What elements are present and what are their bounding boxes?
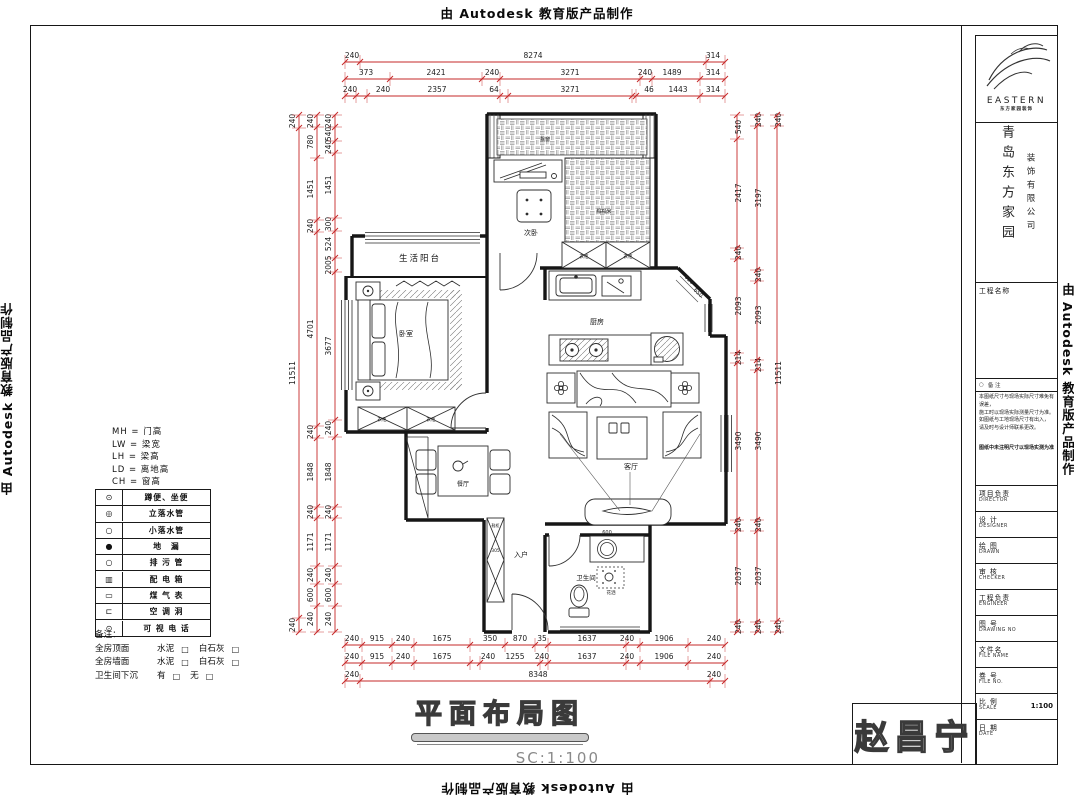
toilet-symbol-icon: ⊙	[96, 490, 123, 505]
checkbox-icon: □	[206, 670, 214, 684]
coffee-table	[597, 417, 647, 459]
project-name-label: 工程名称	[979, 285, 1054, 295]
shoe-cabinet-label: 鞋柜	[492, 522, 500, 528]
shower-label: 花洒	[607, 589, 616, 596]
checkbox-icon: □	[173, 670, 181, 684]
title-underline-thin	[417, 744, 583, 745]
svg-text:4701: 4701	[306, 319, 315, 338]
svg-text:2037: 2037	[734, 566, 743, 585]
floor-drain-icon: ●	[96, 539, 123, 554]
svg-text:46: 46	[644, 85, 654, 94]
svg-text:35: 35	[537, 634, 547, 643]
wardrobe-label: 衣柜	[378, 416, 387, 423]
legend-row: ▥配 电 箱	[96, 570, 210, 586]
armchair	[549, 412, 587, 458]
gas-stove	[560, 339, 608, 361]
note-row: 卫生间下沉 有□ 无□	[95, 670, 239, 684]
revision-row: ○ 备 注	[976, 379, 1057, 392]
svg-text:240: 240	[396, 652, 411, 661]
legend-row: ⊙蹲便、坐便	[96, 490, 210, 505]
kitchen-label: 厨房	[590, 317, 604, 326]
brand-subtitle: 东方家园装饰	[979, 106, 1054, 112]
abbr-line: LH = 梁高	[112, 451, 169, 464]
site-note: 图纸中未注明尺寸以现场实测为准	[979, 445, 1054, 453]
finish-notes: 备注： 全房顶面 水泥□ 白石灰□ 全房墙面 水泥□ 白石灰□ 卫生间下沉 有□…	[95, 629, 239, 683]
svg-text:240: 240	[376, 85, 391, 94]
svg-text:1489: 1489	[662, 68, 681, 77]
dresser	[494, 160, 562, 182]
svg-text:1443: 1443	[668, 85, 687, 94]
legend-row: ⊏空 调 洞	[96, 603, 210, 619]
legend-row: ●地 漏	[96, 538, 210, 554]
wardrobe-cabinets	[358, 407, 455, 430]
wardrobe-label: 衣柜	[624, 253, 633, 260]
svg-text:240: 240	[306, 612, 315, 627]
dim-chain-right-outer: 240 11511 240	[770, 112, 784, 635]
svg-text:3271: 3271	[560, 85, 579, 94]
living-room: 客厅	[547, 371, 701, 525]
bathroom-door-arc	[549, 535, 580, 566]
svg-text:11511: 11511	[774, 361, 783, 385]
tb-row-drawn: 绘 图DRAWN	[976, 538, 1057, 564]
entry-area: 鞋柜 305 入户	[487, 518, 548, 630]
drawing-title-text: 平面布局图	[400, 692, 600, 731]
second-bedroom: 飘窗 榻榻米 衣柜 衣柜 次卧	[494, 119, 650, 290]
tb-row-file-no: 卷 号FILE NO.	[976, 668, 1057, 694]
svg-text:64: 64	[489, 85, 499, 94]
balcony-label: 生活阳台	[399, 253, 441, 264]
dim-chain-bottom-1: 240 915 240 1675 350 870 35 1637 240 190…	[342, 634, 728, 652]
svg-text:240: 240	[288, 114, 297, 129]
dim-chain-top-3: 240 240 2357 64 3271 46 1443 314	[342, 85, 728, 103]
svg-text:240: 240	[707, 652, 722, 661]
project-name-section: 工程名称	[976, 283, 1057, 379]
svg-text:1848: 1848	[306, 462, 315, 481]
svg-text:240: 240	[306, 425, 315, 440]
end-table	[547, 373, 575, 403]
tatami-label: 榻榻米	[596, 208, 611, 215]
small-downpipe-icon: ○	[96, 523, 123, 538]
dim-chain-top-1: 240 8274 314	[342, 51, 728, 69]
autodesk-watermark-bottom: 由 Autodesk 教育版产品制作	[0, 780, 1074, 798]
tb-row-designer: 设 计DESIGNER	[976, 512, 1057, 538]
svg-text:240: 240	[481, 652, 496, 661]
living-balcony: 生活阳台	[396, 253, 460, 286]
entry-label: 入户	[514, 550, 528, 559]
svg-text:2357: 2357	[427, 85, 446, 94]
signature-name: 赵昌宁	[855, 710, 975, 759]
note-row: 全房顶面 水泥□ 白石灰□	[95, 643, 239, 657]
basin-dim-text: 600	[602, 530, 612, 536]
title-block: EASTERN 东方家园装饰 青岛东方家园 装饰有限公司 工程名称 ○ 备 注 …	[975, 35, 1058, 765]
nightstand	[356, 382, 380, 400]
svg-text:2093: 2093	[734, 296, 743, 315]
checkbox-icon: □	[181, 643, 189, 657]
balcony-zigzag	[396, 281, 460, 286]
shoe-cabinet-dim: 305	[491, 548, 500, 554]
company-name-sub: 装饰有限公司	[1024, 153, 1036, 280]
tb-row-scale: 比 例SCALE1:100	[976, 694, 1057, 720]
titleblock-divider-line	[961, 25, 962, 763]
svg-text:1675: 1675	[432, 652, 451, 661]
svg-text:240: 240	[306, 219, 315, 234]
legend-row: ◎立落水管	[96, 505, 210, 521]
svg-text:1637: 1637	[577, 652, 596, 661]
dim-chain-left-outer: 240 11511 240	[288, 112, 306, 635]
second-bedroom-door-arc	[500, 253, 537, 290]
kitchen: 厨房 650 650	[549, 271, 704, 365]
svg-text:540: 540	[734, 120, 743, 135]
svg-text:2421: 2421	[426, 68, 445, 77]
svg-text:8274: 8274	[523, 51, 542, 60]
svg-text:240: 240	[345, 634, 360, 643]
wardrobe-label: 衣柜	[427, 416, 436, 423]
svg-text:240: 240	[620, 634, 635, 643]
brand-name: EASTERN	[979, 96, 1054, 106]
sewage-pipe-icon: ○	[96, 555, 123, 570]
svg-text:300: 300	[324, 217, 333, 232]
svg-text:1255: 1255	[505, 652, 524, 661]
svg-text:1637: 1637	[577, 634, 596, 643]
revision-symbol-icon: ○	[979, 382, 984, 388]
legend-row: ○小落水管	[96, 522, 210, 538]
nightstand	[356, 282, 380, 300]
svg-text:314: 314	[706, 68, 721, 77]
tb-row-file-name: 文件名FILE NAME	[976, 642, 1057, 668]
company-name-section: 青岛东方家园 装饰有限公司	[976, 123, 1057, 283]
svg-text:314: 314	[706, 51, 721, 60]
wardrobe-label: 衣柜	[580, 253, 589, 260]
svg-text:1171: 1171	[306, 532, 315, 551]
cad-sheet: 由 Autodesk 教育版产品制作 由 Autodesk 教育版产品制作 由 …	[0, 0, 1074, 798]
svg-text:870: 870	[513, 634, 528, 643]
svg-text:1451: 1451	[306, 179, 315, 198]
svg-text:240: 240	[345, 51, 360, 60]
svg-text:780: 780	[306, 135, 315, 150]
floor-plan-canvas: 飘窗 榻榻米 衣柜 衣柜 次卧 生	[282, 44, 794, 694]
svg-text:240: 240	[324, 114, 333, 129]
svg-text:2037: 2037	[754, 566, 763, 585]
autodesk-watermark-left: 由 Autodesk 教育版产品制作	[0, 295, 17, 495]
drawing-scale-text: SC:1:100	[400, 749, 600, 767]
wardrobe-cabinets	[562, 242, 650, 268]
svg-text:915: 915	[370, 634, 385, 643]
checkbox-icon: □	[181, 656, 189, 670]
bathroom: 卫生间 600 花洒	[549, 530, 644, 617]
abbreviation-key: MH = 门高 LW = 梁宽 LH = 梁高 LD = 离地高 CH = 窗高	[112, 426, 169, 489]
tb-row-date: 日 期DATE	[976, 720, 1057, 746]
svg-text:1848: 1848	[324, 462, 333, 481]
tb-row-director: 项目负责DIRECTOR	[976, 486, 1057, 512]
second-bedroom-label: 次卧	[524, 228, 538, 237]
svg-text:1906: 1906	[654, 634, 673, 643]
dining-area: 餐厅	[406, 437, 510, 518]
dining-label: 餐厅	[457, 480, 469, 488]
svg-text:240: 240	[306, 568, 315, 583]
drawing-title: 平面布局图 SC:1:100	[400, 692, 600, 767]
master-bedroom-door-arc	[451, 393, 486, 428]
dining-table	[416, 446, 510, 496]
svg-text:2417: 2417	[734, 183, 743, 202]
tb-row-drawing-no: 图 号DRAWING NO	[976, 616, 1057, 642]
svg-text:240: 240	[324, 612, 333, 627]
cutting-board	[602, 276, 631, 296]
signature-box: 赵昌宁	[852, 703, 977, 765]
company-name-main: 青岛东方家园	[997, 125, 1016, 280]
svg-text:11511: 11511	[288, 361, 297, 385]
main-downpipe-icon: ◎	[96, 506, 123, 521]
svg-text:240: 240	[288, 618, 297, 633]
company-logo-section: EASTERN 东方家园装饰	[976, 36, 1057, 123]
dim-chain-bottom-3: 240 8348 240	[342, 670, 728, 688]
svg-text:240: 240	[345, 670, 360, 679]
svg-text:8348: 8348	[528, 670, 547, 679]
tb-row-checker: 审 核CHECKER	[976, 564, 1057, 590]
sofa	[577, 371, 671, 407]
svg-text:2093: 2093	[754, 305, 763, 324]
ac-hole-icon: ⊏	[96, 604, 123, 619]
toilet	[569, 585, 589, 617]
svg-text:240: 240	[324, 140, 333, 155]
gas-meter-icon: ▭	[96, 588, 123, 603]
revision-label: 备 注	[988, 381, 1001, 389]
svg-text:240: 240	[707, 634, 722, 643]
dim-chain-top-2: 373 2421 240 3271 240 1489 314	[342, 68, 728, 86]
dim-chain-right-middle: 240 3197 240 2093 214 3490 240 2037 240	[750, 112, 764, 635]
svg-text:1675: 1675	[432, 634, 451, 643]
svg-text:3490: 3490	[754, 431, 763, 450]
abbr-line: CH = 窗高	[112, 476, 169, 489]
svg-text:1451: 1451	[324, 175, 333, 194]
checkbox-icon: □	[232, 643, 240, 657]
svg-text:240: 240	[396, 634, 411, 643]
checkbox-icon: □	[232, 656, 240, 670]
eastern-swoosh-logo-icon	[981, 40, 1053, 92]
chair	[517, 190, 551, 222]
dim-chain-left-inner: 240 540 240 1451 300 524 2005 3677 240 1…	[324, 112, 342, 635]
svg-text:3490: 3490	[734, 431, 743, 450]
entry-door-arc	[512, 594, 548, 630]
autodesk-watermark-right: 由 Autodesk 教育版产品制作	[1058, 283, 1074, 533]
bathroom-label: 卫生间	[576, 573, 596, 582]
svg-text:915: 915	[370, 652, 385, 661]
scale-value: 1:100	[1031, 702, 1053, 710]
distribution-box-icon: ▥	[96, 572, 123, 587]
end-table	[671, 373, 699, 403]
dim-chain-left-middle: 240 780 1451 240 4701 240 1848 240 1171 …	[306, 112, 324, 635]
shoe-cabinet	[487, 518, 504, 602]
disclaimer-section: 本图纸尺寸与现场实际尺寸难免有误差， 施工时以现场实际测量尺寸为准。 如图纸与工…	[976, 392, 1057, 486]
living-room-label: 客厅	[624, 462, 638, 471]
svg-text:240: 240	[620, 652, 635, 661]
svg-text:240: 240	[345, 652, 360, 661]
dim-chain-bottom-2: 240 915 240 1675 240 1255 240 1637 240 1…	[342, 652, 728, 670]
svg-text:240: 240	[485, 68, 500, 77]
washing-machine	[651, 333, 683, 365]
svg-text:314: 314	[706, 85, 721, 94]
svg-text:240: 240	[324, 568, 333, 583]
svg-text:524: 524	[324, 237, 333, 252]
double-bed	[358, 300, 448, 380]
title-underline-bar	[411, 733, 589, 742]
svg-text:240: 240	[707, 670, 722, 679]
svg-text:1906: 1906	[654, 652, 673, 661]
legend-table: ⊙蹲便、坐便 ◎立落水管 ○小落水管 ●地 漏 ○排 污 管 ▥配 电 箱 ▭煤…	[95, 489, 211, 637]
svg-text:240: 240	[535, 652, 550, 661]
svg-text:600: 600	[324, 588, 333, 603]
master-bedroom-label: 卧室	[399, 329, 413, 338]
abbr-line: MH = 门高	[112, 426, 169, 439]
autodesk-watermark-top: 由 Autodesk 教育版产品制作	[0, 3, 1074, 22]
svg-text:3677: 3677	[324, 336, 333, 355]
kitchen-sink	[556, 275, 596, 296]
note-row: 全房墙面 水泥□ 白石灰□	[95, 656, 239, 670]
shower-head: 花洒	[597, 567, 624, 596]
svg-text:1171: 1171	[324, 532, 333, 551]
svg-text:350: 350	[483, 634, 498, 643]
abbr-line: LW = 梁宽	[112, 439, 169, 452]
svg-text:240: 240	[306, 114, 315, 129]
legend-row: ▭煤 气 表	[96, 587, 210, 603]
svg-text:240: 240	[324, 421, 333, 436]
bay-window-label: 飘窗	[540, 136, 550, 143]
svg-text:3197: 3197	[754, 188, 763, 207]
armchair	[663, 412, 701, 458]
master-bedroom: 卧室 衣柜 衣柜	[356, 282, 486, 430]
svg-text:373: 373	[359, 68, 374, 77]
abbr-line: LD = 离地高	[112, 464, 169, 477]
svg-text:540: 540	[324, 127, 333, 142]
notes-title: 备注：	[95, 629, 239, 643]
dim-chain-right-inner: 540 2417 240 2093 214 3490 240 2037 240	[730, 112, 744, 635]
svg-text:600: 600	[306, 588, 315, 603]
svg-text:3271: 3271	[560, 68, 579, 77]
tb-row-engineer: 工程负责ENGINEER	[976, 590, 1057, 616]
legend-row: ○排 污 管	[96, 554, 210, 570]
